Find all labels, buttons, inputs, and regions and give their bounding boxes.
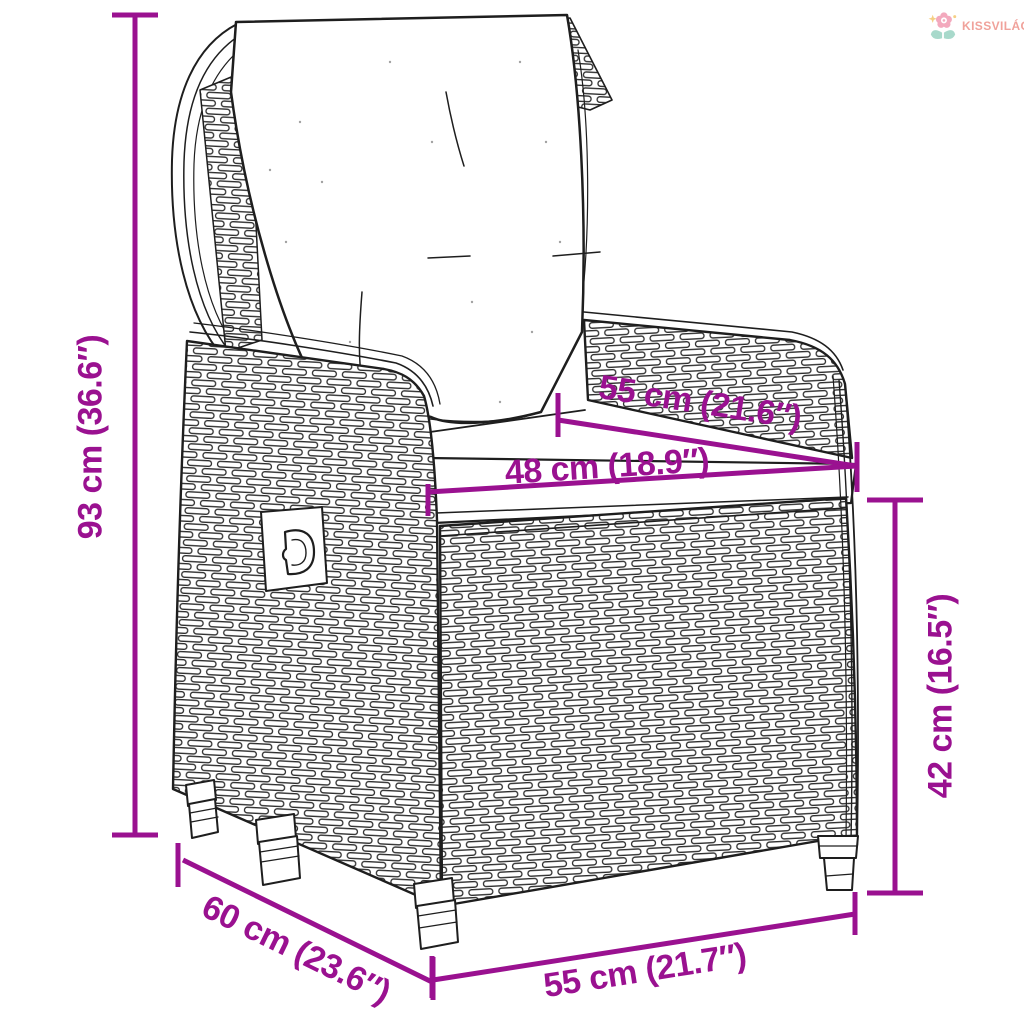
leg-back-left xyxy=(186,780,218,838)
dimension-label-total-height: 93 cm (36.6″) xyxy=(72,335,111,539)
product-dimension-diagram: 93 cm (36.6″) 55 cm (21.6″) 48 cm (18.9″… xyxy=(0,0,1024,1024)
brand-logo: KISSVILÁG xyxy=(928,9,1024,43)
dimension-line-seat-height xyxy=(867,500,923,893)
leg-front-center xyxy=(414,878,458,949)
dimension-label-seat-height: 42 cm (16.5″) xyxy=(922,594,961,798)
flower-blossom-icon xyxy=(936,12,952,27)
brand-name: KISSVILÁG xyxy=(962,19,1024,33)
chair-front-panel xyxy=(440,498,857,906)
chair-line-art xyxy=(0,0,1024,1024)
recline-lever xyxy=(261,507,327,591)
leaves-icon xyxy=(931,30,955,39)
sparkle-icon xyxy=(929,15,937,23)
leg-front-right xyxy=(818,836,858,890)
flower-sprout-icon xyxy=(928,9,958,43)
dimension-line-total-height xyxy=(112,15,158,835)
leg-front-left xyxy=(256,814,300,885)
